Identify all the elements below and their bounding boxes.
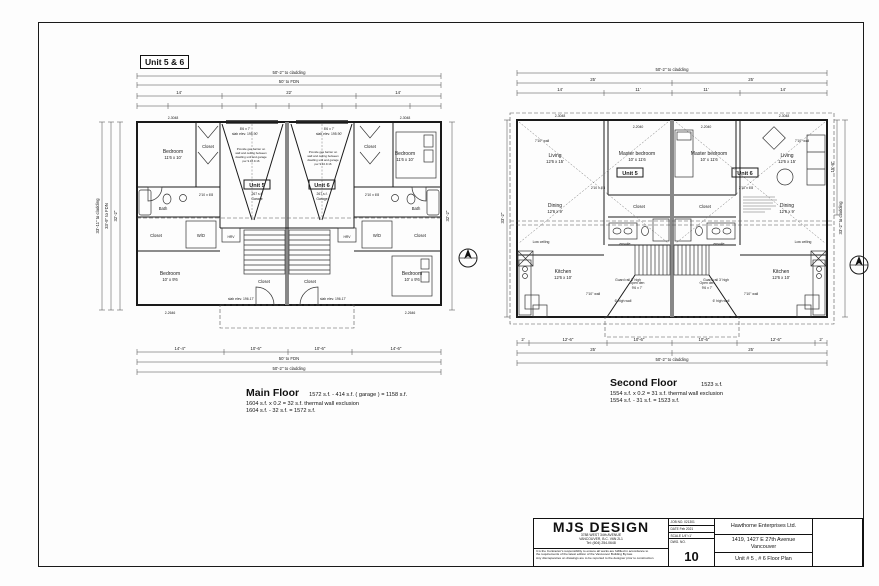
dim-text: 14'-4" bbox=[175, 346, 186, 351]
door-tag: 2'10 x 6'8 bbox=[591, 186, 605, 190]
room-label: Closet bbox=[150, 233, 163, 238]
room-label: Closet bbox=[304, 279, 317, 284]
unit5-bath-fixtures bbox=[139, 190, 187, 215]
garage-door-size: 8'6 x 7' bbox=[324, 127, 335, 131]
dim-text: 33'-2" to cladding bbox=[838, 201, 843, 235]
unit5-label: Unit 5 bbox=[617, 168, 643, 177]
north-arrow-icon bbox=[850, 256, 868, 274]
disclaimer: It is the Contractor's responsibility to… bbox=[534, 548, 668, 561]
room-label: Bath bbox=[412, 206, 421, 211]
dwg-label: DWG. NO. bbox=[669, 539, 714, 546]
dim-text: 50' to FDN bbox=[279, 356, 299, 361]
svg-text:Unit 5: Unit 5 bbox=[622, 171, 638, 177]
dim-text: 12'-6" bbox=[771, 337, 782, 342]
svg-text:Unit 6: Unit 6 bbox=[314, 183, 330, 189]
dim-text: 2' bbox=[521, 337, 524, 342]
room-label: ensuite bbox=[620, 242, 631, 246]
unit5-kitchen-counters bbox=[519, 260, 547, 317]
dim-text: 33'-2" bbox=[500, 212, 505, 223]
room-label: ensuite bbox=[714, 242, 725, 246]
door-tag: 2'10 x 6'8 bbox=[739, 186, 753, 190]
svg-text:Garage: Garage bbox=[316, 197, 327, 201]
unit5-ensuite-fixtures bbox=[609, 219, 669, 241]
room-size: 12'6 x 10' bbox=[772, 275, 790, 280]
project-address: 1419, 1427 E 27th Avenue Vancouver bbox=[715, 535, 812, 553]
room-label: Closet bbox=[364, 144, 377, 149]
room-label: W/D bbox=[197, 233, 205, 238]
svg-text:per 9.10.9.16: per 9.10.9.16 bbox=[314, 162, 331, 166]
title-block: MJS DESIGN 3788 WEST 34th AVENUE VANCOUV… bbox=[533, 518, 864, 567]
note-text: 6' high wall bbox=[615, 299, 632, 303]
window-tag: 2-2040 bbox=[633, 125, 644, 129]
slab-elevation: slab elev. 196.17' bbox=[228, 297, 254, 301]
svg-text:Garage: Garage bbox=[251, 197, 262, 201]
unit6-ensuite-fixtures bbox=[675, 219, 735, 241]
dim-text: 14' bbox=[557, 87, 563, 92]
dim-text: 10'-6" bbox=[699, 337, 710, 342]
main-floor-title: Main Floor1572 s.f. - 414 s.f. ( garage … bbox=[246, 383, 407, 415]
unit5-label: Unit 5 267 s.f. Garage bbox=[244, 180, 270, 201]
dim-text: 11' bbox=[635, 87, 640, 92]
dim-text: 22' bbox=[286, 90, 292, 95]
area-calc: 1604 s.f. x 0.2 = 32 s.f. thermal wall e… bbox=[246, 401, 407, 408]
window-tag: 2-2646 bbox=[405, 311, 416, 315]
svg-text:Unit 5: Unit 5 bbox=[249, 183, 265, 189]
dim-text: 50' to FDN bbox=[279, 79, 299, 84]
note-text: 7'10" wall bbox=[535, 139, 550, 143]
dim-text: 50'-2" to cladding bbox=[656, 357, 690, 362]
drawing-number: 10 bbox=[669, 546, 714, 566]
note-text: 7'10" wall bbox=[744, 292, 759, 296]
dim-text: 10'-6" bbox=[251, 346, 262, 351]
door-tag: 2'10 x 6'8 bbox=[199, 193, 213, 197]
dim-text: 33'-9" to FDN bbox=[104, 203, 109, 229]
room-label: Closet bbox=[699, 204, 712, 209]
dim-text: 2' bbox=[819, 337, 822, 342]
note-text: Low ceiling bbox=[795, 240, 812, 244]
dim-text: 10'-6" bbox=[315, 346, 326, 351]
party-wall bbox=[670, 120, 674, 317]
second-top-dimensions: 50'-2" to cladding 25' 25' 14' 11' 11' 1… bbox=[517, 67, 827, 96]
unit5-partitions bbox=[137, 122, 220, 251]
firm-phone: Tel: (604) 254-0648 bbox=[534, 542, 668, 546]
dim-text: 10'-6" bbox=[634, 337, 645, 342]
room-size: 10' x 9'6 bbox=[404, 277, 420, 282]
area-calc: 1554 s.f. - 31 s.f. = 1523 s.f. bbox=[610, 398, 723, 405]
dim-text: 14'-6" bbox=[391, 346, 402, 351]
note-text: 7'10" wall bbox=[795, 139, 810, 143]
room-label: Closet bbox=[414, 233, 427, 238]
dim-text: 50'-2" to cladding bbox=[656, 67, 690, 72]
note-text: Guard rail 3' high bbox=[615, 278, 641, 282]
plan-title-text: Second Floor bbox=[610, 377, 677, 389]
room-size: 10' x 11'6 bbox=[700, 157, 718, 162]
window-tag: 2-3048 bbox=[400, 116, 411, 120]
second-floor-plan: 50'-2" to cladding 25' 25' 14' 11' 11' 1… bbox=[485, 55, 875, 395]
room-size: 11'6 x 10' bbox=[396, 157, 414, 162]
info-cell: JOB NO. 021301 DATE Feb 2021 SCALE 1/4"=… bbox=[669, 519, 715, 566]
svg-text:per 9.10.9.16: per 9.10.9.16 bbox=[242, 159, 259, 163]
slab-elevation: slab elev. 196.17' bbox=[320, 297, 346, 301]
dim-text: 14' bbox=[176, 90, 182, 95]
dim-text: 25' bbox=[590, 77, 596, 82]
room-size: 12'6 x 15' bbox=[546, 159, 564, 164]
room-size: 11'6 x 10' bbox=[164, 155, 182, 160]
room-size: 12'6 x 10' bbox=[554, 275, 572, 280]
svg-text:267 s.f.: 267 s.f. bbox=[316, 192, 327, 196]
dim-text: 25' bbox=[590, 347, 596, 352]
plan-title-text: Main Floor bbox=[246, 387, 299, 399]
client-cell: Hawthorne Enterprises Ltd. 1419, 1427 E … bbox=[715, 519, 813, 566]
dim-text: 14' bbox=[395, 90, 401, 95]
window-tag: 2-3048 bbox=[555, 114, 566, 118]
sheet-title: Unit # 5 , # 6 Floor Plan bbox=[715, 553, 812, 566]
unit6-partitions bbox=[354, 122, 441, 251]
room-label: Closet bbox=[202, 144, 215, 149]
dim-text: 50'-2" to cladding bbox=[273, 70, 307, 75]
window-tag: 2-2646 bbox=[165, 311, 176, 315]
client-name: Hawthorne Enterprises Ltd. bbox=[715, 519, 812, 535]
main-top-dimensions: 50'-2" to cladding 50' to FDN 14' 22' 14… bbox=[137, 70, 441, 109]
main-bottom-dimensions: 14'-4" 10'-6" 10'-6" 14'-6" 50' to FDN 5… bbox=[137, 346, 441, 375]
area-calc: 1572 s.f. - 414 s.f. ( garage ) = 1158 s… bbox=[309, 392, 407, 398]
window-tag: 2-2040 bbox=[701, 125, 712, 129]
porch-outline bbox=[220, 305, 354, 328]
job-number: JOB NO. 021301 bbox=[669, 519, 714, 526]
dim-text: 32'-2" bbox=[113, 210, 118, 221]
room-size: 10' x 9'6 bbox=[162, 277, 178, 282]
dim-text: 25' bbox=[748, 347, 754, 352]
second-floor-title: Second Floor1523 s.f. 1554 s.f. x 0.2 = … bbox=[610, 373, 723, 405]
firm-cell: MJS DESIGN 3788 WEST 34th AVENUE VANCOUV… bbox=[534, 519, 669, 566]
note-text: 6' high wall bbox=[713, 299, 730, 303]
revision-cell bbox=[813, 519, 863, 566]
window-tag: 2-3048 bbox=[168, 116, 179, 120]
room-label: W/D bbox=[373, 233, 381, 238]
dim-text: 33'-11" to cladding bbox=[95, 198, 100, 234]
dim-text: 11' bbox=[703, 87, 708, 92]
svg-text:267 s.f.: 267 s.f. bbox=[251, 192, 262, 196]
room-label: Closet bbox=[258, 279, 271, 284]
dim-text: 12'-6" bbox=[563, 337, 574, 342]
slab-elevation: slab elev. 195.90' bbox=[316, 132, 342, 136]
code-note-lines bbox=[743, 197, 777, 212]
room-label: HRV bbox=[227, 235, 235, 239]
dim-text: 14' bbox=[780, 87, 786, 92]
drawing-sheet: Unit 5 & 6 50'-2" to cladding 50' to FDN… bbox=[0, 0, 879, 586]
party-wall bbox=[285, 122, 289, 305]
area-calc: 1604 s.f. - 32 s.f. = 1572 s.f. bbox=[246, 408, 407, 415]
note-text: Low ceiling bbox=[533, 240, 550, 244]
slab-elevation: slab elev. 195.90' bbox=[232, 132, 258, 136]
main-floor-plan: 50'-2" to cladding 50' to FDN 14' 22' 14… bbox=[48, 60, 478, 390]
north-arrow-icon bbox=[459, 249, 477, 267]
door-tag: 2'10 x 6'8 bbox=[365, 193, 379, 197]
dim-text: 32'-2" bbox=[445, 210, 450, 221]
second-bottom-dimensions: 2' 12'-6" 10'-6" 10'-6" 12'-6" 2' 25' 25… bbox=[517, 337, 827, 366]
unit6-kitchen-counters bbox=[797, 260, 825, 317]
room-size: 12'6 x 15' bbox=[778, 159, 796, 164]
room-size: 12'6 x 9' bbox=[779, 209, 795, 214]
note-text: Guard rail 3' high bbox=[703, 278, 729, 282]
note-text: 7'10" wall bbox=[586, 292, 601, 296]
unit6-bath-fixtures bbox=[392, 190, 440, 215]
room-size: 12'6 x 9' bbox=[547, 209, 563, 214]
dim-text: 50'-2" to cladding bbox=[273, 366, 307, 371]
date: DATE Feb 2021 bbox=[669, 526, 714, 533]
room-label: Closet bbox=[633, 204, 646, 209]
svg-text:Unit 6: Unit 6 bbox=[737, 171, 753, 177]
dim-text: 25' bbox=[748, 77, 754, 82]
scale: SCALE 1/4"=1' bbox=[669, 533, 714, 540]
room-label: Bath bbox=[159, 206, 168, 211]
firm-name: MJS DESIGN bbox=[534, 520, 668, 534]
garage-door-size: 8'6 x 7' bbox=[240, 127, 251, 131]
room-size: 9'6 x 7' bbox=[632, 286, 643, 290]
lower-roof-outline bbox=[605, 317, 739, 337]
window-tag: 2-3048 bbox=[779, 114, 790, 118]
area-total: 1523 s.f. bbox=[701, 382, 722, 388]
room-label: HRV bbox=[343, 235, 351, 239]
room-size: 9'6 x 7' bbox=[702, 286, 713, 290]
room-size: 10' x 11'6 bbox=[628, 157, 646, 162]
area-calc: 1554 s.f. x 0.2 = 31 s.f. thermal wall e… bbox=[610, 391, 723, 398]
